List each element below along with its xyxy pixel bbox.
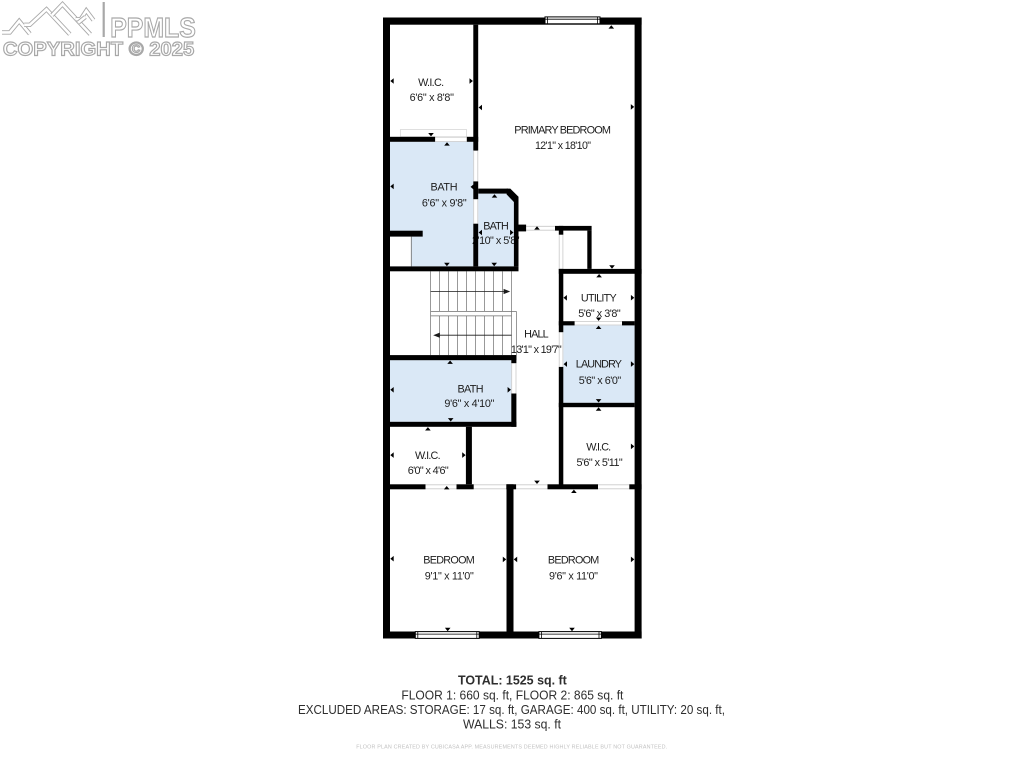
svg-text:TOTAL: 1525 sq. ft: TOTAL: 1525 sq. ft [458,674,568,688]
svg-text:FLOOR PLAN CREATED BY CUBICASA: FLOOR PLAN CREATED BY CUBICASA APP. MEAS… [356,744,667,750]
svg-text:WALLS: 153 sq. ft: WALLS: 153 sq. ft [463,718,561,732]
svg-text:COPYRIGHT © 2025: COPYRIGHT © 2025 [3,38,195,60]
svg-text:6'6" x 9'8": 6'6" x 9'8" [422,197,467,209]
svg-text:BEDROOM: BEDROOM [423,555,475,567]
svg-text:9'1" x 11'0": 9'1" x 11'0" [425,571,474,583]
svg-text:LAUNDRY: LAUNDRY [576,359,622,371]
svg-text:W.I.C.: W.I.C. [586,442,611,454]
svg-text:2'10" x 5'8": 2'10" x 5'8" [472,235,520,247]
svg-text:HALL: HALL [524,329,549,341]
svg-text:9'6" x 11'0": 9'6" x 11'0" [549,571,598,583]
svg-text:EXCLUDED AREAS: STORAGE: 17 sq: EXCLUDED AREAS: STORAGE: 17 sq. ft, GARA… [298,703,725,717]
svg-text:5'6" x 5'11": 5'6" x 5'11" [576,457,622,469]
svg-text:6'6" x 8'8": 6'6" x 8'8" [410,92,455,104]
svg-text:W.I.C.: W.I.C. [418,77,444,89]
svg-text:W.I.C.: W.I.C. [415,450,441,462]
svg-text:12'1" x 18'10": 12'1" x 18'10" [535,140,591,152]
svg-text:UTILITY: UTILITY [581,292,617,304]
svg-text:6'0" x 4'6": 6'0" x 4'6" [408,465,449,477]
svg-text:9'6" x 4'10": 9'6" x 4'10" [444,398,494,410]
svg-text:BEDROOM: BEDROOM [548,555,599,567]
svg-text:FLOOR 1: 660 sq. ft, FLOOR 2:: FLOOR 1: 660 sq. ft, FLOOR 2: 865 sq. ft [401,688,623,702]
svg-text:PRIMARY BEDROOM: PRIMARY BEDROOM [514,125,611,137]
svg-text:BATH: BATH [431,181,458,193]
svg-text:BATH: BATH [483,221,509,233]
svg-text:5'6" x 6'0": 5'6" x 6'0" [579,375,622,387]
svg-text:13'1" x 19'7": 13'1" x 19'7" [511,344,562,356]
svg-text:BATH: BATH [458,383,484,395]
